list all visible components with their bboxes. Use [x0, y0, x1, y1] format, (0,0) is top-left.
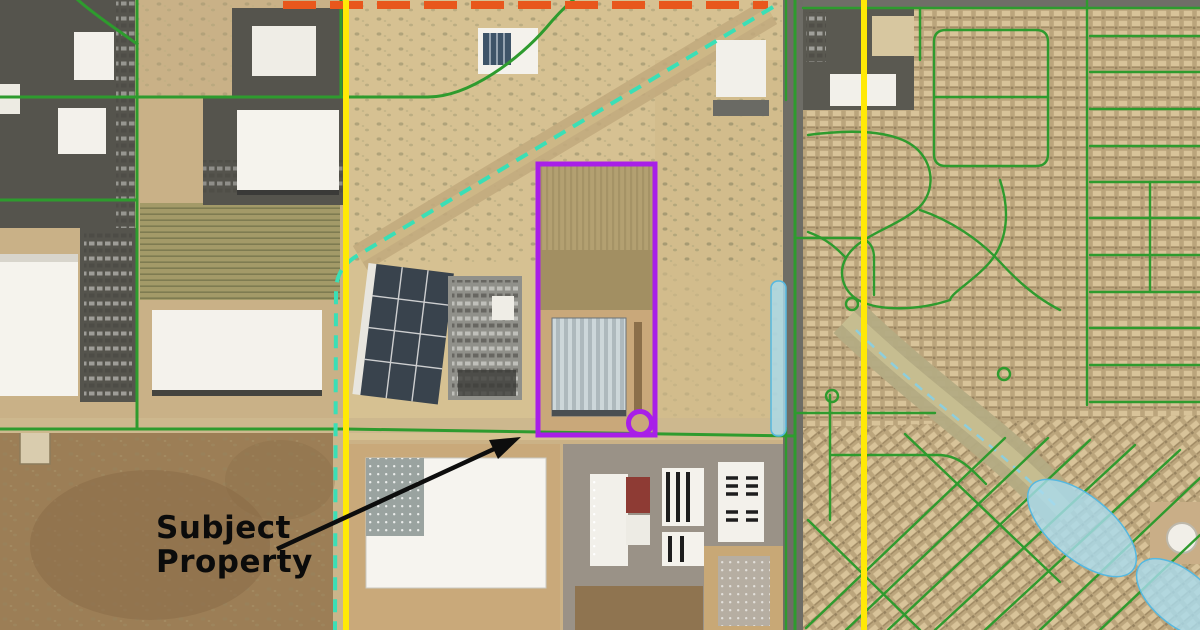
- channel-highlight: [771, 281, 786, 436]
- subject-property-label: Subject Property: [156, 512, 316, 580]
- map-canvas: Subject Property: [0, 0, 1200, 630]
- subject-parcel-interior: [540, 166, 653, 435]
